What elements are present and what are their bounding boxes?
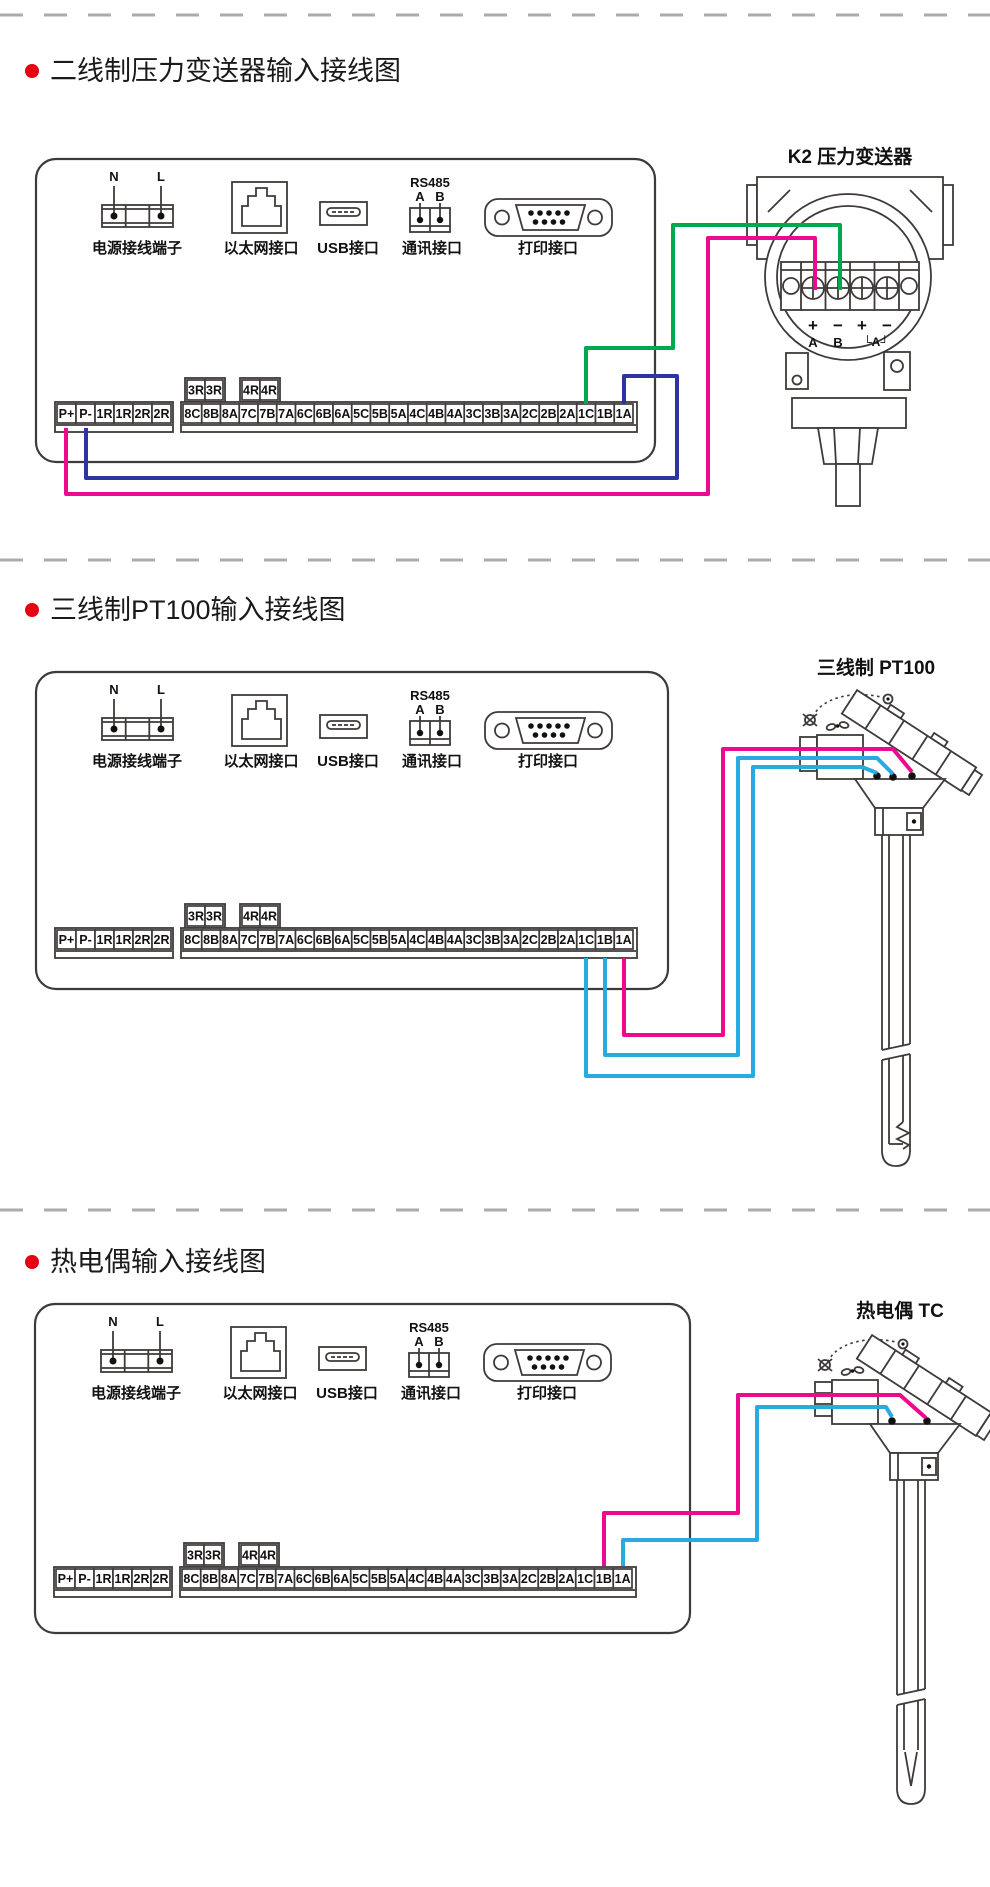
polarity-plus-1: +: [808, 316, 818, 335]
section-title: 热电偶输入接线图: [50, 1247, 266, 1277]
diagram-canvas: N L 电源接线端子 以太网接口: [0, 0, 990, 1887]
wiring-diagram-page: N L 电源接线端子 以太网接口: [0, 0, 990, 1887]
transmitter-terminal-block: [781, 262, 919, 310]
section-three-wire-pt100: 三线制PT100输入接线图 三线制 PT100: [25, 595, 987, 1166]
section-title: 二线制压力变送器输入接线图: [50, 56, 401, 86]
section-two-wire-pressure: 二线制压力变送器输入接线图 K2 压力变送器: [25, 56, 953, 506]
transmitter-flange: [792, 398, 906, 428]
polarity-plus-2: +: [857, 316, 867, 335]
device-label: 热电偶 TC: [856, 1299, 944, 1322]
transmitter-pin-a: A: [808, 335, 818, 350]
sensor-wire-dot: [908, 772, 916, 780]
transmitter-nut: [818, 428, 878, 464]
title-bullet-icon: [25, 1255, 39, 1269]
tc-probe: [897, 1480, 925, 1804]
sensor-wire-dot: [889, 773, 897, 781]
thermocouple-sensor: 热电偶 TC: [815, 1299, 990, 1804]
device-label: K2 压力变送器: [788, 145, 914, 168]
tc-junction-v: [905, 1752, 917, 1786]
transmitter-process-stub: [836, 464, 860, 506]
polarity-minus-1: −: [833, 316, 843, 335]
rtd-element-squiggle: [897, 1122, 909, 1149]
pt100-head-instance: [800, 685, 987, 835]
sensor-wire-dot: [888, 1417, 896, 1425]
transmitter-pin-b: B: [833, 335, 842, 350]
pt100-sensor: 三线制 PT100: [800, 656, 987, 1166]
polarity-minus-2: −: [882, 316, 892, 335]
title-bullet-icon: [25, 603, 39, 617]
device-label: 三线制 PT100: [817, 656, 935, 679]
section-title: 三线制PT100输入接线图: [50, 595, 346, 625]
transmitter-pin-bracket: └A┘: [863, 335, 889, 349]
pt100-probe: [882, 835, 910, 1166]
pressure-transmitter: K2 压力变送器: [747, 145, 953, 506]
title-bullet-icon: [25, 64, 39, 78]
section-thermocouple: 热电偶输入接线图 热电偶 TC: [25, 1247, 990, 1804]
